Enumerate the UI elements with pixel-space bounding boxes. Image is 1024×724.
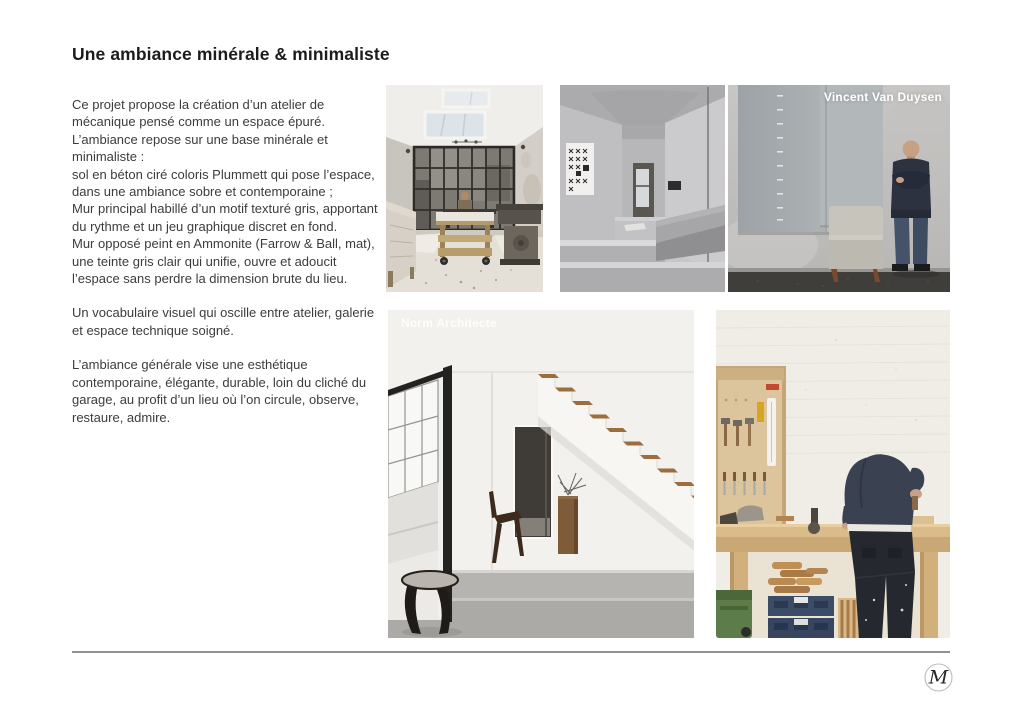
page-title: Une ambiance minérale & minimaliste (72, 44, 390, 65)
couloir-illustration (560, 85, 725, 292)
body-paragraph: Un vocabulaire visuel qui oscille entre … (72, 304, 380, 339)
portrait-illustration (728, 85, 950, 292)
photo-atelier (386, 85, 543, 292)
etabli-illustration (716, 310, 950, 638)
slide-page: Une ambiance minérale & minimaliste Ce p… (0, 0, 1024, 724)
escalier-illustration (388, 310, 694, 638)
body-paragraph: Ce projet propose la création d’un ateli… (72, 96, 380, 287)
photo-couloir (560, 85, 725, 292)
body-text-block: Ce projet propose la création d’un ateli… (72, 96, 380, 443)
photo-portrait: Vincent Van Duysen (728, 85, 950, 292)
photo-caption-portrait: Vincent Van Duysen (824, 90, 942, 104)
photo-etabli (716, 310, 950, 638)
monogram-letter: M (928, 667, 949, 689)
photo-escalier: Norm Architecte (388, 310, 694, 638)
body-paragraph: L’ambiance générale vise une esthétique … (72, 356, 380, 426)
photo-caption-escalier: Norm Architecte (401, 316, 497, 330)
brand-logo-monogram-icon: M (923, 662, 954, 693)
footer-divider-rule (72, 651, 950, 653)
atelier-illustration (386, 85, 543, 292)
